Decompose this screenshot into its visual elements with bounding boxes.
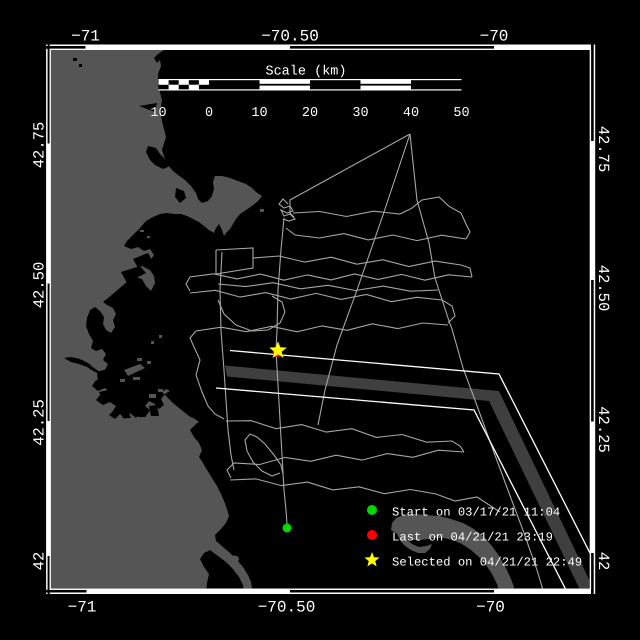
svg-text:42.25: 42.25	[594, 406, 612, 453]
svg-text:Scale (km): Scale (km)	[265, 65, 346, 80]
svg-text:20: 20	[302, 106, 318, 121]
svg-text:−71: −71	[68, 599, 97, 617]
svg-text:10: 10	[251, 106, 267, 121]
svg-text:50: 50	[453, 106, 469, 121]
svg-text:42.75: 42.75	[594, 126, 612, 173]
svg-text:0: 0	[205, 106, 213, 121]
svg-text:42.50: 42.50	[594, 265, 612, 312]
svg-text:−70.50: −70.50	[261, 28, 319, 46]
svg-text:Last on 04/21/21 23:19: Last on 04/21/21 23:19	[392, 531, 553, 545]
svg-text:−70.50: −70.50	[258, 599, 316, 617]
svg-text:42.50: 42.50	[31, 262, 49, 309]
svg-text:40: 40	[403, 106, 419, 121]
svg-text:30: 30	[352, 106, 368, 121]
svg-text:Selected on 04/21/21 22:49: Selected on 04/21/21 22:49	[392, 556, 582, 570]
svg-text:−70: −70	[476, 599, 505, 617]
svg-text:42.75: 42.75	[31, 122, 49, 169]
svg-text:−70: −70	[480, 28, 509, 46]
svg-text:10: 10	[150, 106, 166, 121]
svg-text:42: 42	[31, 552, 49, 571]
svg-text:Start on 03/17/21 11:04: Start on 03/17/21 11:04	[392, 506, 560, 520]
svg-text:42: 42	[594, 552, 612, 571]
svg-text:42.25: 42.25	[31, 399, 49, 446]
svg-text:−71: −71	[71, 28, 100, 46]
